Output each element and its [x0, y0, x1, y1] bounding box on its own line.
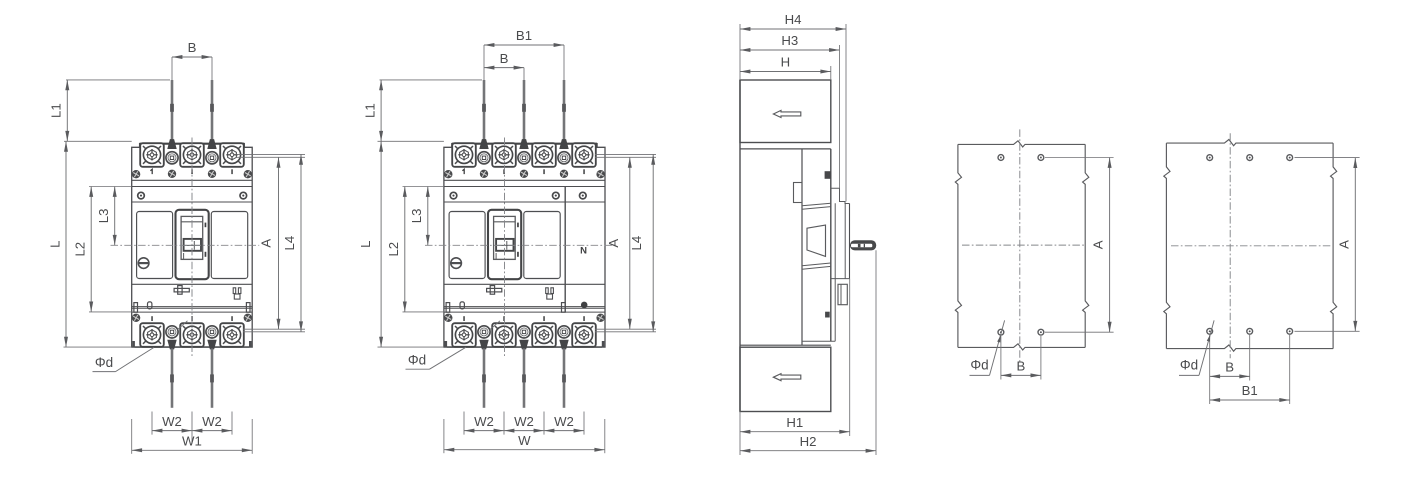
svg-text:L1: L1: [363, 103, 378, 118]
svg-text:A: A: [1091, 240, 1106, 249]
svg-text:B: B: [500, 51, 509, 66]
svg-text:L2: L2: [73, 242, 88, 257]
svg-text:Φd: Φd: [95, 355, 113, 370]
svg-text:B: B: [1225, 360, 1234, 375]
svg-text:H: H: [781, 55, 791, 70]
svg-text:Φd: Φd: [408, 353, 426, 368]
svg-text:W2: W2: [202, 414, 222, 429]
svg-text:Φd: Φd: [970, 358, 988, 373]
svg-text:B: B: [188, 40, 197, 55]
svg-text:W2: W2: [554, 414, 574, 429]
svg-text:L1: L1: [49, 103, 64, 118]
svg-text:H3: H3: [781, 33, 798, 48]
svg-text:L3: L3: [409, 209, 424, 224]
svg-text:A: A: [259, 239, 274, 248]
svg-text:W2: W2: [514, 414, 534, 429]
svg-text:W2: W2: [474, 414, 494, 429]
svg-text:L2: L2: [386, 242, 401, 257]
svg-text:L: L: [47, 241, 62, 248]
svg-text:L3: L3: [96, 209, 111, 224]
svg-text:W: W: [518, 433, 531, 448]
svg-text:L4: L4: [282, 236, 297, 251]
svg-text:W2: W2: [162, 414, 182, 429]
svg-text:N: N: [580, 246, 587, 257]
svg-text:L4: L4: [629, 236, 644, 251]
svg-text:B: B: [1017, 359, 1026, 374]
svg-text:H1: H1: [786, 415, 803, 430]
svg-text:L: L: [358, 241, 373, 248]
svg-text:A: A: [1336, 240, 1351, 249]
svg-text:B1: B1: [1242, 383, 1258, 398]
svg-text:A: A: [606, 239, 621, 248]
svg-text:H4: H4: [785, 12, 802, 27]
svg-text:W1: W1: [182, 434, 202, 449]
svg-text:Φd: Φd: [1180, 358, 1198, 373]
svg-text:B1: B1: [516, 28, 532, 43]
svg-text:H2: H2: [800, 434, 817, 449]
